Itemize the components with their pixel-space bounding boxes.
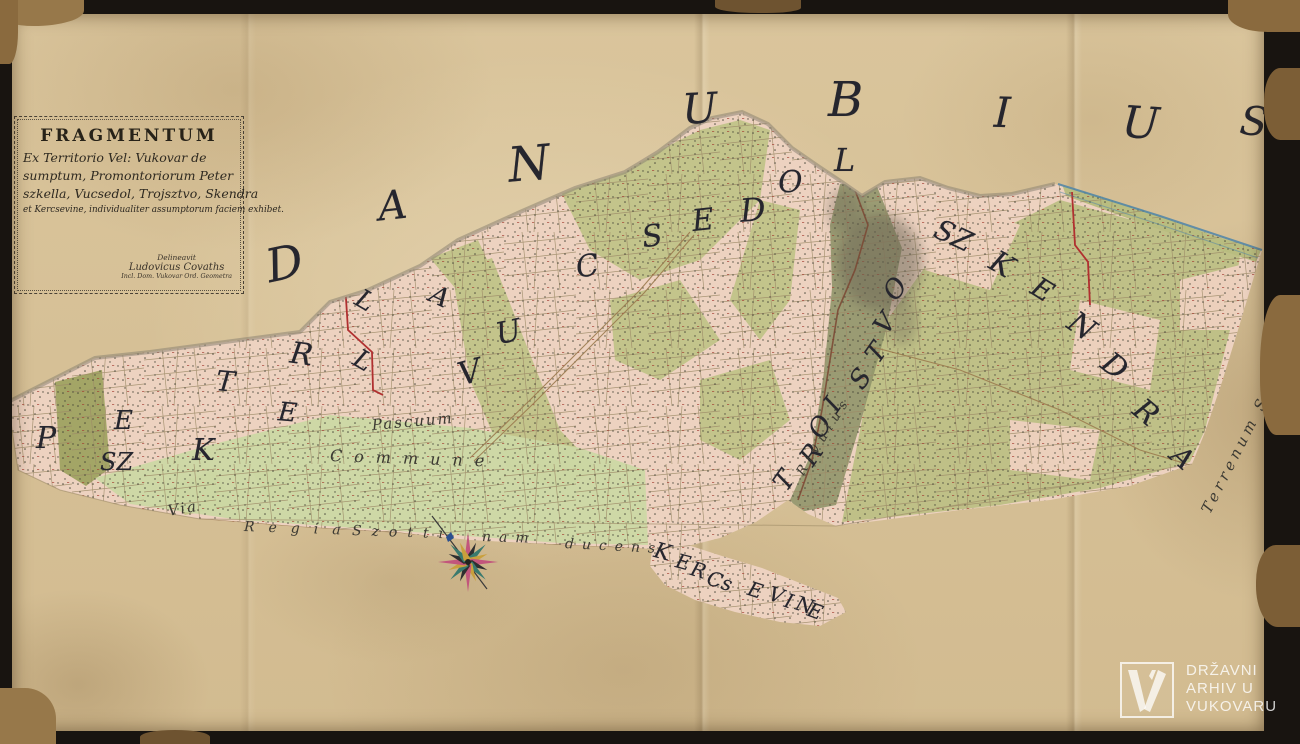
watermark-line: DRŽAVNI <box>1186 662 1277 680</box>
cartouche-line: sumptum, Promontoriorum Peter <box>23 167 235 185</box>
signature-line: Incl. Dom. Vukovar Ord. Geometra <box>121 273 232 280</box>
cartouche-line: et Kercsevine, individualiter assumptoru… <box>23 205 235 215</box>
map-scan: FRAGMENTUM Ex Territorio Vel: Vukovar de… <box>0 0 1300 744</box>
surveyor-signature: Delineavit Ludovicus Covaths Incl. Dom. … <box>121 253 232 280</box>
archive-logo-icon <box>1120 662 1174 718</box>
cartouche-line: szkella, Vucsedol, Trojsztvo, Skendra <box>23 185 235 203</box>
signature-line: Ludovicus Covaths <box>121 262 232 273</box>
watermark-line: ARHIV U <box>1186 680 1277 698</box>
watermark-line: VUKOVARU <box>1186 698 1277 716</box>
map-body <box>0 0 1300 744</box>
archive-watermark: DRŽAVNI ARHIV U VUKOVARU <box>1120 662 1277 718</box>
signature-line: Delineavit <box>121 253 232 262</box>
title-cartouche: FRAGMENTUM Ex Territorio Vel: Vukovar de… <box>14 116 244 294</box>
cartouche-line: Ex Territorio Vel: Vukovar de <box>23 149 235 167</box>
map-title: FRAGMENTUM <box>23 126 235 146</box>
map-drawing <box>0 0 1300 744</box>
archive-name: DRŽAVNI ARHIV U VUKOVARU <box>1186 662 1277 716</box>
